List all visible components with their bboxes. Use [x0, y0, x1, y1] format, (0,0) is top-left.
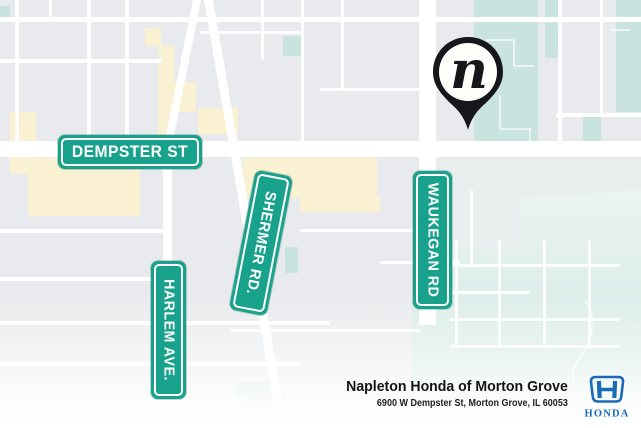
street-sign-label: HARLEM AVE. [160, 279, 177, 381]
street-sign-label: DEMPSTER ST [64, 135, 196, 169]
street-sign-waukegan-rd: WAUKEGAN RD [413, 171, 452, 309]
honda-logo-icon: HONDA [582, 374, 632, 420]
street-sign-label: WAUKEGAN RD [424, 183, 441, 297]
street-sign-dempster-st: DEMPSTER ST [58, 135, 202, 169]
dealer-location-map: n DEMPSTER ST SHERMER RD. HARLEM AVE. WA… [0, 0, 641, 428]
dealer-info: Napleton Honda of Morton Grove 6900 W De… [332, 378, 568, 410]
honda-wordmark: HONDA [584, 409, 629, 420]
dealer-address: 6900 W Dempster St, Morton Grove, IL 600… [356, 398, 568, 411]
napleton-pin-icon: n [430, 35, 506, 133]
dealer-name: Napleton Honda of Morton Grove [346, 378, 568, 397]
street-sign-harlem-ave: HARLEM AVE. [151, 261, 186, 399]
pin-letter: n [450, 40, 488, 101]
map-background [0, 0, 641, 428]
